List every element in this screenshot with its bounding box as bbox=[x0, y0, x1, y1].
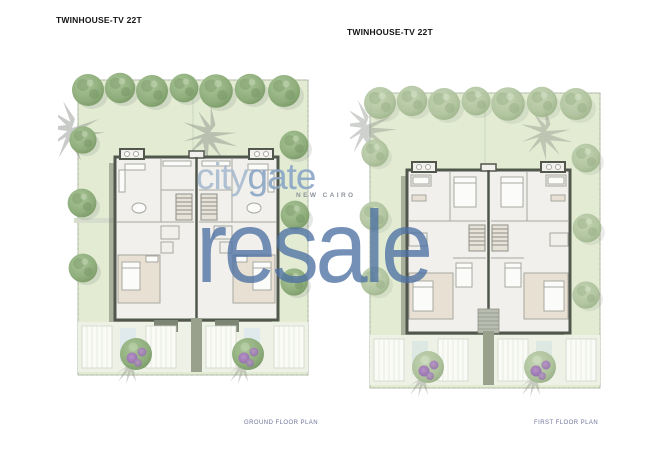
first-floor-plan bbox=[350, 83, 610, 403]
plan-caption: FIRST FLOOR PLAN bbox=[534, 420, 598, 426]
floor-plan-sheet: TWINHOUSE-TV 22T TWINHOUSE-TV 22T bbox=[0, 0, 668, 452]
first-floor-plan-illustration bbox=[350, 83, 610, 398]
plan-title: TWINHOUSE-TV 22T bbox=[56, 15, 142, 25]
ground-floor-plan bbox=[58, 70, 318, 390]
ground-floor-plan-illustration bbox=[58, 70, 318, 385]
plan-caption: GROUND FLOOR PLAN bbox=[244, 420, 318, 426]
driveway-parking bbox=[78, 318, 308, 372]
plan-title: TWINHOUSE-TV 22T bbox=[347, 27, 433, 37]
